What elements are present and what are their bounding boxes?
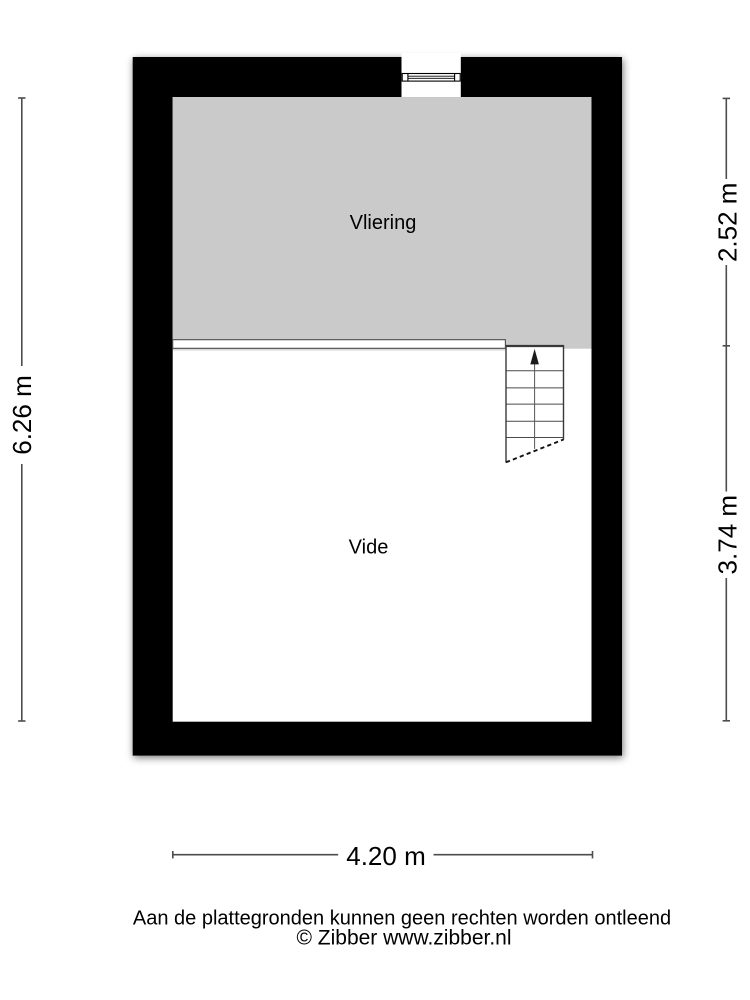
svg-text:4.20 m: 4.20 m	[346, 841, 426, 871]
svg-text:Vliering: Vliering	[350, 212, 417, 234]
svg-text:6.26 m: 6.26 m	[7, 375, 37, 455]
svg-text:Vide: Vide	[349, 537, 389, 559]
svg-text:3.74 m: 3.74 m	[713, 495, 743, 575]
svg-text:© Zibber www.zibber.nl: © Zibber www.zibber.nl	[296, 926, 511, 949]
svg-text:2.52 m: 2.52 m	[713, 183, 743, 262]
